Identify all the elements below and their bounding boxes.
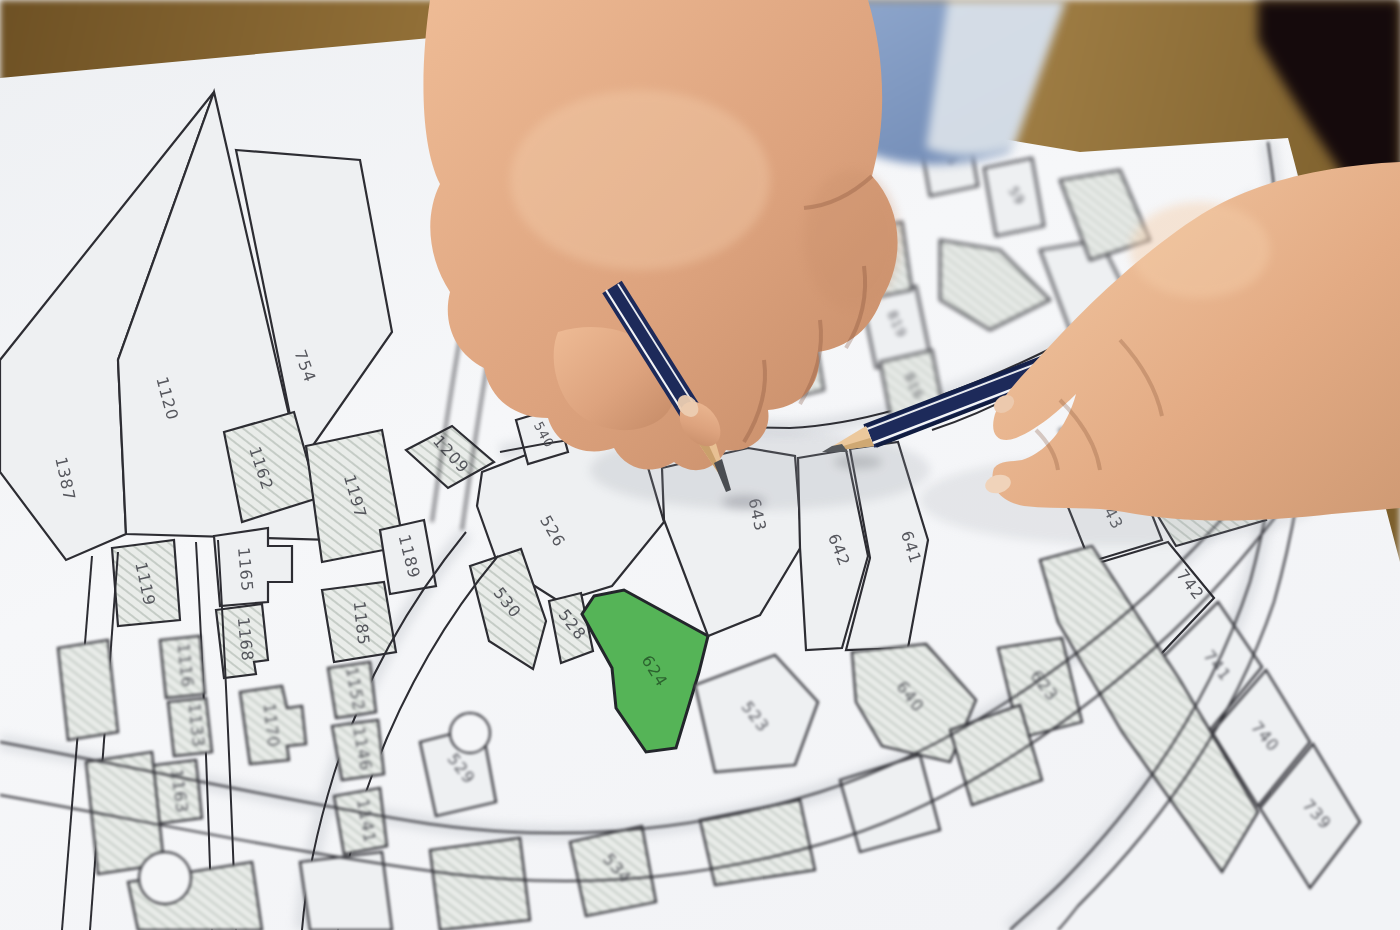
cul-de-sac-loop — [450, 713, 490, 753]
hand-highlight — [1130, 202, 1270, 298]
parcel-polygon — [430, 838, 530, 930]
cul-de-sac-loop — [139, 852, 191, 904]
hand-highlight — [510, 90, 770, 270]
parcel-polygon — [58, 640, 118, 740]
cadastral-map-photo: 1387 1120 754 1162 1197 1209 1189 1165 1… — [0, 0, 1400, 930]
photo-canvas: 1387 1120 754 1162 1197 1209 1189 1165 1… — [0, 0, 1400, 930]
parcel-label: 1165 — [234, 546, 257, 592]
